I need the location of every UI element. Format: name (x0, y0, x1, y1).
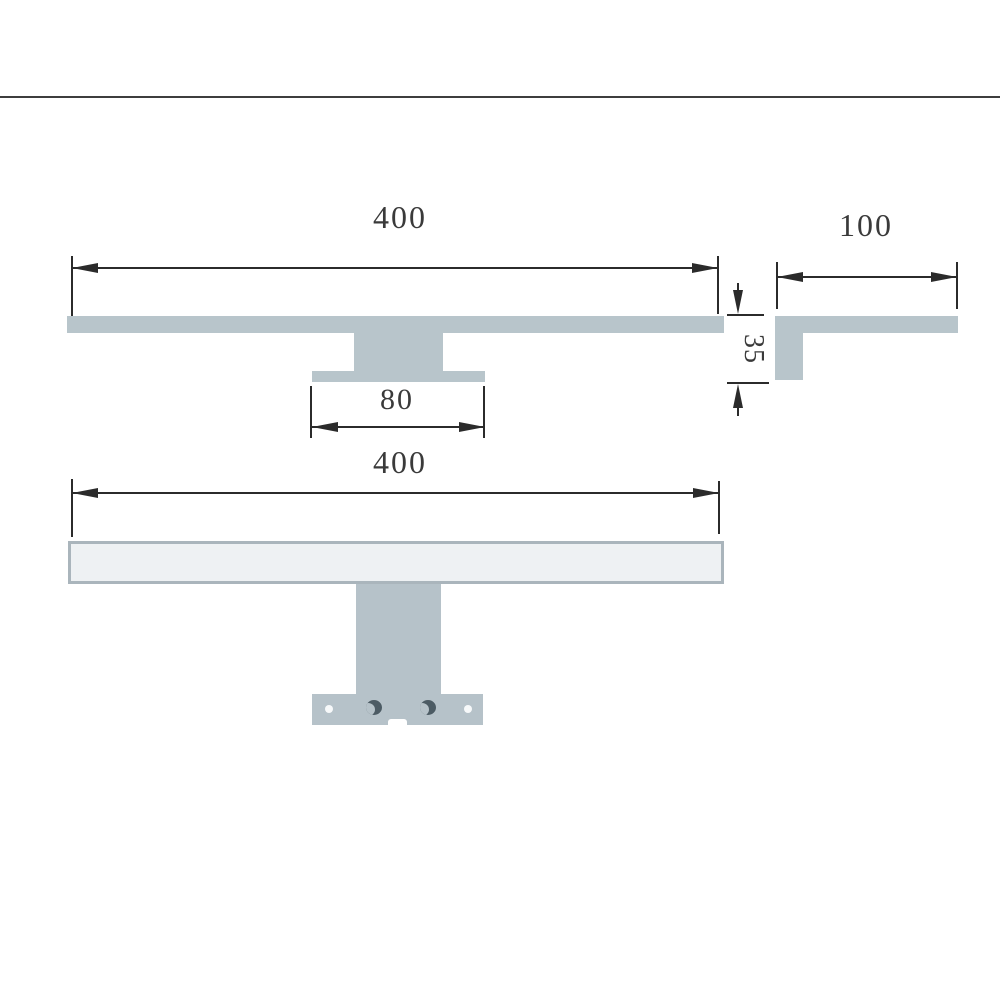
dim-arrow-right-icon (931, 272, 957, 282)
profile-bracket-stem (354, 333, 443, 373)
dim-label-side-depth: 100 (816, 207, 916, 243)
dim-line-height-tail (737, 404, 739, 416)
extension-line (71, 479, 73, 537)
dim-label-height: 35 (736, 324, 770, 374)
dim-label-bottom-width: 400 (300, 444, 500, 480)
dim-arrow-right-icon (693, 488, 719, 498)
dim-label-front-width: 400 (300, 199, 500, 235)
crescent-slot-right (420, 700, 436, 715)
profile-bracket-base (312, 371, 485, 382)
dim-arrow-left-icon (72, 488, 98, 498)
dim-arrow-left-icon (312, 422, 338, 432)
dim-arrow-left-icon (777, 272, 803, 282)
dim-line-front-width (72, 267, 718, 269)
dim-line-bottom-width (72, 492, 719, 494)
side-lamp-bar (775, 316, 958, 333)
dim-arrow-down-icon (733, 290, 743, 314)
crescent-slot-left (366, 700, 382, 715)
dim-arrow-right-icon (459, 422, 485, 432)
dim-line-side-depth (777, 276, 957, 278)
dim-label-bracket-base: 80 (347, 383, 447, 417)
frame-top-line (0, 96, 1000, 98)
dim-arrow-left-icon (72, 263, 98, 273)
side-bracket-leg (775, 333, 803, 380)
extension-line (776, 262, 778, 309)
screw-hole-right (464, 705, 472, 713)
cable-notch (388, 719, 407, 726)
technical-drawing-canvas: 400 80 35 100 400 (0, 0, 1000, 1000)
dim-arrow-right-icon (692, 263, 718, 273)
extension-line (718, 481, 720, 534)
screw-hole-left (325, 705, 333, 713)
extension-line (956, 262, 958, 309)
profile-lamp-bar (67, 316, 724, 333)
front-lamp-body (68, 541, 724, 584)
extension-line (717, 256, 719, 314)
extension-tick (727, 314, 764, 316)
extension-line (71, 256, 73, 316)
front-bracket-stem (356, 584, 441, 695)
